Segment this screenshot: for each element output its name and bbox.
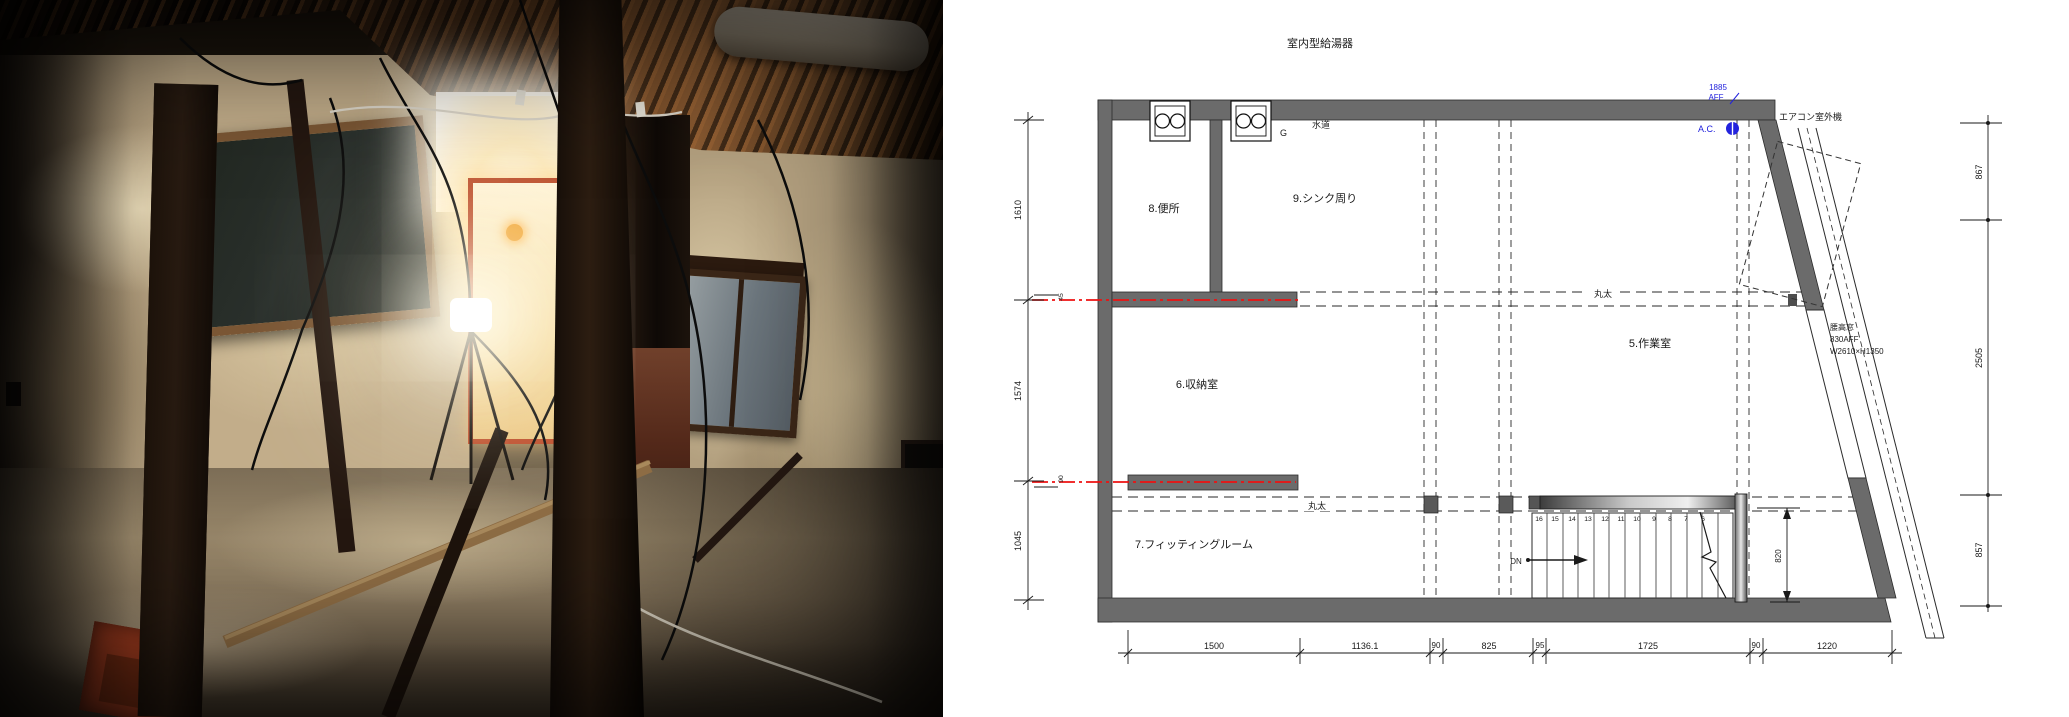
photo-white-cable bbox=[330, 107, 682, 119]
wall-partition-toilet bbox=[1210, 120, 1222, 292]
wall-left bbox=[1098, 100, 1112, 622]
stair-dim-value: 820 bbox=[1774, 549, 1783, 563]
photo-tripod bbox=[431, 330, 513, 484]
window-note-2: 830AFF bbox=[1830, 335, 1859, 344]
dn-arrow-dot bbox=[1526, 558, 1530, 562]
water-label: 水道 bbox=[1312, 119, 1330, 130]
dim-bottom-6: 90 bbox=[1752, 641, 1761, 650]
dim-bottom-3: 825 bbox=[1481, 641, 1496, 651]
staircase: 16 15 14 13 12 11 10 9 8 7 6 DN bbox=[1510, 494, 1747, 602]
dim-bottom-5: 1725 bbox=[1638, 641, 1658, 651]
dim-left-1: 1574 bbox=[1013, 381, 1023, 401]
aff-value: 1885 bbox=[1709, 83, 1727, 92]
post-square bbox=[1424, 496, 1438, 513]
floor-plan-drawing: 室内型給湯器 丸太 丸太 bbox=[943, 0, 2069, 717]
photo-right-brace bbox=[695, 455, 800, 560]
small-dim-lower: 90 bbox=[1058, 475, 1065, 483]
screenshot: 室内型給湯器 丸太 丸太 bbox=[0, 0, 2069, 717]
renovation-photo bbox=[0, 0, 943, 717]
dim-bottom-2: 90 bbox=[1432, 641, 1441, 650]
room-label-fitting: 7.フィッティングルーム bbox=[1135, 537, 1253, 551]
dimension-right: 867 2505 857 bbox=[1960, 115, 2002, 612]
wall-top bbox=[1098, 100, 1775, 120]
ac-outdoor-label: エアコン室外機 bbox=[1779, 111, 1842, 122]
dimension-bottom: 1500 1136.1 90 825 95 1725 90 1220 bbox=[1118, 630, 1902, 664]
step-9: 9 bbox=[1652, 516, 1656, 523]
stair-handrail bbox=[1540, 496, 1737, 509]
dimension-bottom-ticks bbox=[1124, 630, 1896, 664]
photo-work-light bbox=[450, 298, 492, 332]
wall-diagonal-upper bbox=[1758, 120, 1824, 310]
stair-side-wall bbox=[1735, 494, 1747, 602]
room-label-toilet: 8.便所 bbox=[1148, 202, 1179, 215]
step-7: 7 bbox=[1684, 516, 1688, 523]
dim-right-0: 867 bbox=[1974, 164, 1984, 179]
window-note-1: 腰高窓 bbox=[1830, 322, 1854, 332]
post-square bbox=[1788, 294, 1797, 306]
dim-bottom-1: 1136.1 bbox=[1352, 641, 1379, 651]
photo-hanging-fitting bbox=[515, 90, 526, 106]
wall-diagonal-lower bbox=[1848, 478, 1896, 598]
meter-dial bbox=[1171, 114, 1185, 128]
dim-left-2: 1045 bbox=[1013, 531, 1023, 551]
photo-cables bbox=[180, 0, 809, 660]
meter-dial bbox=[1237, 114, 1251, 128]
stair-outline bbox=[1532, 513, 1733, 598]
dim-bottom-0: 1500 bbox=[1204, 641, 1224, 651]
room-label-storage: 6.収納室 bbox=[1176, 377, 1218, 391]
step-16: 16 bbox=[1535, 516, 1543, 523]
stair-newel-post bbox=[1529, 496, 1540, 509]
step-13: 13 bbox=[1584, 516, 1592, 523]
floor-plan-panel: 室内型給湯器 丸太 丸太 bbox=[943, 0, 2069, 717]
dim-left-0: 1610 bbox=[1013, 200, 1023, 220]
ac-label: A.C. bbox=[1698, 124, 1716, 134]
meter-dial bbox=[1252, 114, 1266, 128]
log-label-lower: 丸太 bbox=[1308, 500, 1326, 511]
photo-dark-brace bbox=[295, 80, 347, 552]
step-12: 12 bbox=[1601, 516, 1609, 523]
dim-right-1: 2505 bbox=[1974, 348, 1984, 368]
aff-label: AFF bbox=[1708, 93, 1723, 102]
small-dim-upper: 45 bbox=[1058, 293, 1065, 301]
log-label-upper: 丸太 bbox=[1594, 288, 1612, 299]
step-10: 10 bbox=[1633, 516, 1641, 523]
stair-dimension: 820 bbox=[1757, 508, 1800, 602]
dimension-left: 1610 1574 1045 bbox=[1013, 112, 1044, 610]
window-note-3: W2610×H1350 bbox=[1830, 347, 1884, 356]
gas-label: G bbox=[1280, 128, 1287, 138]
step-14: 14 bbox=[1568, 516, 1576, 523]
dim-bottom-4: 95 bbox=[1536, 641, 1545, 650]
room-label-work: 5.作業室 bbox=[1629, 336, 1671, 350]
step-11: 11 bbox=[1617, 516, 1624, 523]
step-15: 15 bbox=[1551, 516, 1559, 523]
photo-hanging-fitting bbox=[635, 102, 646, 118]
dim-right-2: 857 bbox=[1974, 542, 1984, 557]
plan-title: 室内型給湯器 bbox=[1287, 36, 1353, 50]
step-8: 8 bbox=[1668, 516, 1672, 523]
dim-bottom-7: 1220 bbox=[1817, 641, 1837, 651]
meter-dial bbox=[1156, 114, 1170, 128]
dn-label: DN bbox=[1510, 557, 1522, 566]
room-label-sink: 9.シンク周り bbox=[1293, 192, 1357, 205]
post-square bbox=[1499, 496, 1513, 513]
red-marker-lines: 45 90 bbox=[1032, 293, 1300, 487]
